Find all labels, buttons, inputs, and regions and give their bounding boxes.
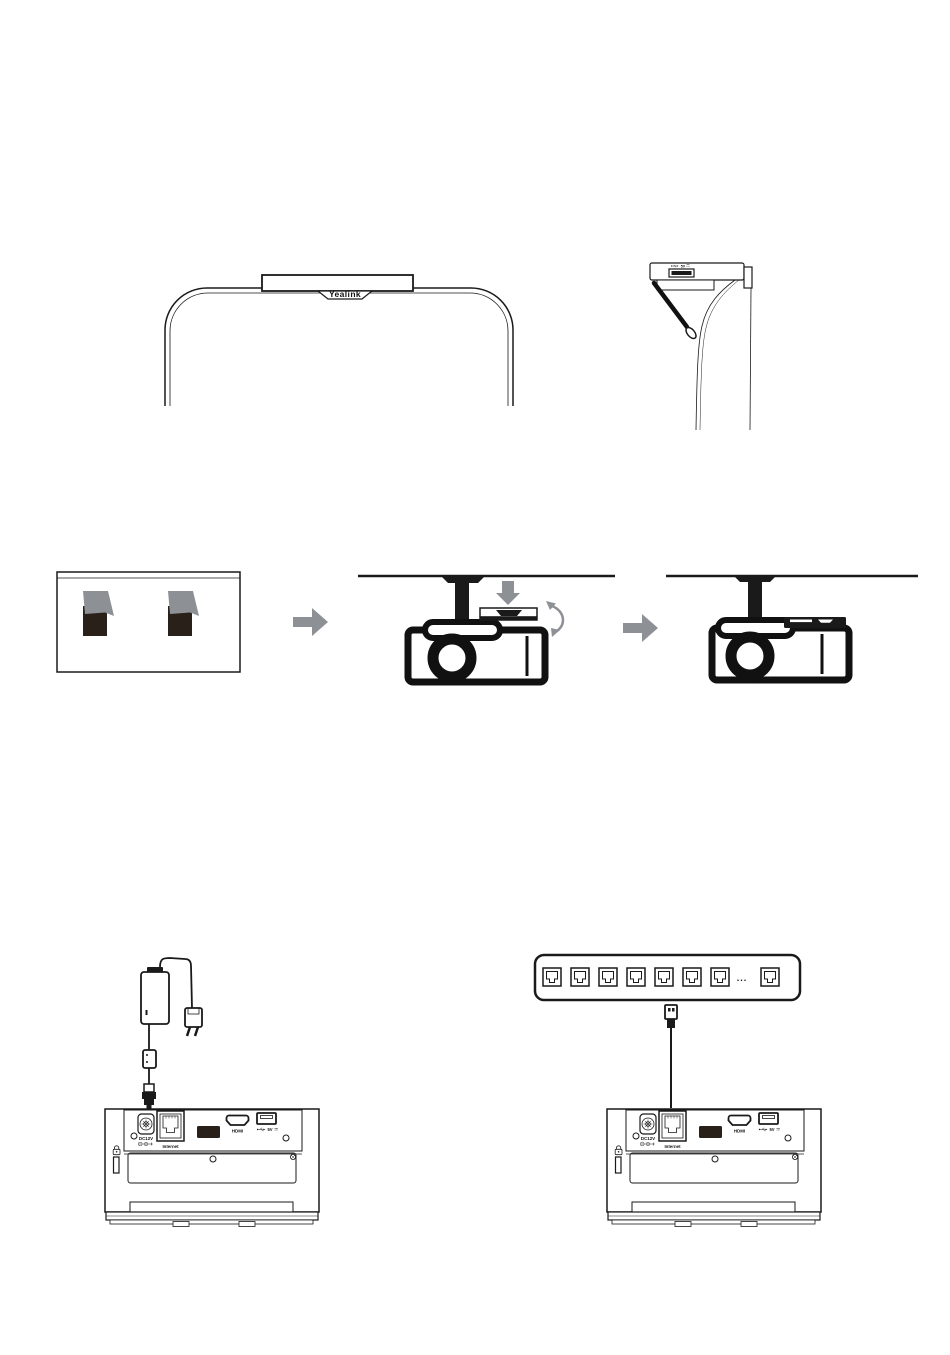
tv-front-curve — [696, 280, 735, 430]
top-usb-label: 5V — [681, 265, 686, 269]
rj45-port — [627, 968, 645, 986]
tv-bezel-curve — [700, 280, 739, 430]
mount-pole — [455, 576, 469, 624]
rj45-port — [571, 968, 589, 986]
tv-outer-frame — [165, 288, 513, 406]
figure-network-connection: ... — [528, 948, 833, 1240]
rj45-port — [543, 968, 561, 986]
block-arrow-right-icon — [623, 614, 658, 642]
block-arrow-down-icon — [496, 581, 520, 605]
tv-back-edge — [750, 288, 751, 430]
device-rear-panel — [607, 1109, 821, 1227]
tv-inner-frame — [170, 293, 508, 406]
usb-slot — [672, 271, 692, 275]
curved-rotate-arrow — [546, 601, 563, 637]
videobar-side-body — [650, 263, 744, 280]
installation-guide-page: Yealink 5V — [0, 0, 950, 1355]
rj45-port — [711, 968, 729, 986]
figure-tv-side-view: 5V — [638, 253, 763, 433]
rj45-connector — [665, 1005, 677, 1019]
brand-label: Yealink — [329, 289, 361, 299]
step-arrow-right — [292, 606, 330, 638]
dc-barrel-connector — [142, 1084, 156, 1109]
rj45-port — [761, 968, 779, 986]
ethernet-switch: ... — [535, 955, 800, 1000]
ac-plug — [185, 1008, 202, 1036]
projector-lens — [731, 637, 769, 675]
adapter-body — [141, 972, 169, 1024]
adapter-led — [146, 1010, 148, 1015]
more-ports-ellipsis: ... — [737, 973, 748, 983]
videobar-rear-hook — [744, 267, 752, 288]
figure-adhesive-strips — [55, 570, 245, 675]
figure-power-connection — [100, 948, 335, 1240]
figure-tv-front-view: Yealink — [160, 266, 520, 406]
mount-pole — [748, 576, 762, 622]
bracket-foot — [684, 326, 698, 341]
step-arrow-right — [622, 612, 660, 644]
power-adapter — [141, 958, 202, 1109]
rj45-port — [683, 968, 701, 986]
mount-collar — [425, 622, 500, 638]
videobar-attached — [784, 617, 846, 628]
figure-mount-step-1 — [355, 568, 617, 690]
ethernet-cable — [665, 1005, 677, 1108]
projector-lens — [433, 639, 471, 677]
rj45-port — [655, 968, 673, 986]
videobar-lower-lip — [657, 280, 714, 290]
device-rear-panel — [105, 1109, 319, 1227]
rj45-port — [599, 968, 617, 986]
figure-mount-step-2 — [660, 568, 922, 690]
ferrite-bead — [143, 1050, 156, 1068]
block-arrow-right-icon — [293, 608, 328, 636]
videobar-being-attached — [480, 608, 537, 620]
